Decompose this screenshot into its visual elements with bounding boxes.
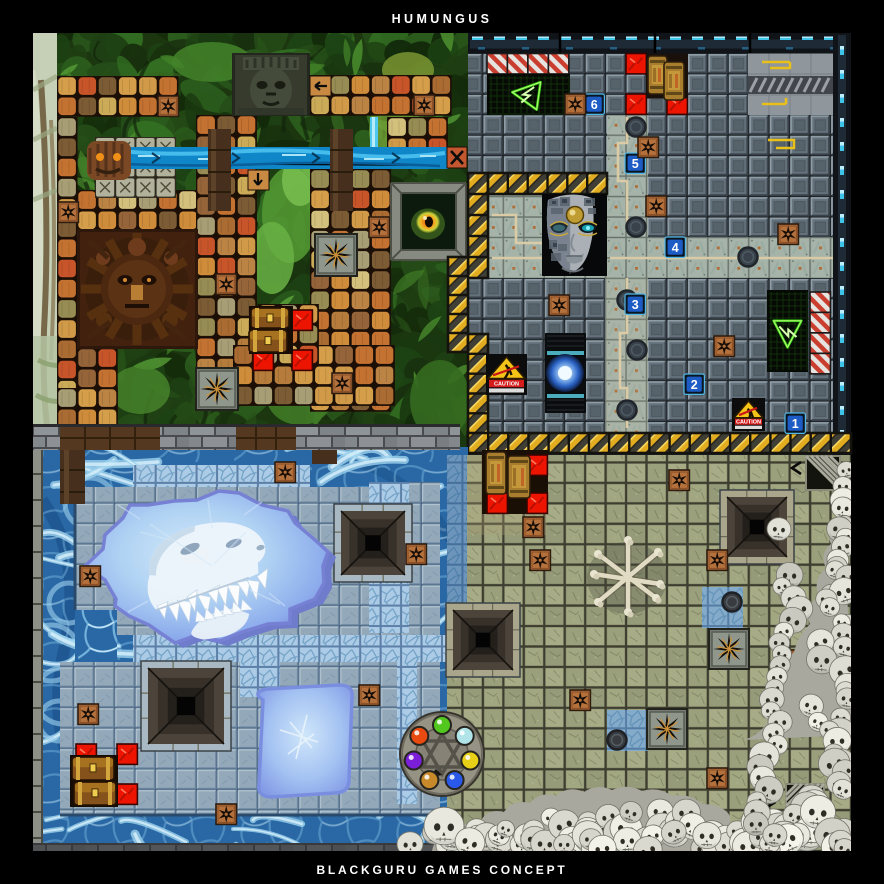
- svg-text:6: 6: [591, 98, 598, 112]
- svg-text:1: 1: [792, 417, 799, 431]
- svg-text:2: 2: [691, 378, 698, 392]
- svg-text:3: 3: [632, 298, 639, 312]
- svg-text:4: 4: [672, 241, 679, 255]
- svg-text:CAUTION: CAUTION: [736, 419, 761, 425]
- svg-text:CAUTION: CAUTION: [494, 382, 519, 388]
- svg-text:HUMUNGUS: HUMUNGUS: [392, 12, 493, 26]
- svg-text:5: 5: [632, 157, 639, 171]
- svg-text:BLACKGURU GAMES CONCEPT: BLACKGURU GAMES CONCEPT: [316, 863, 567, 877]
